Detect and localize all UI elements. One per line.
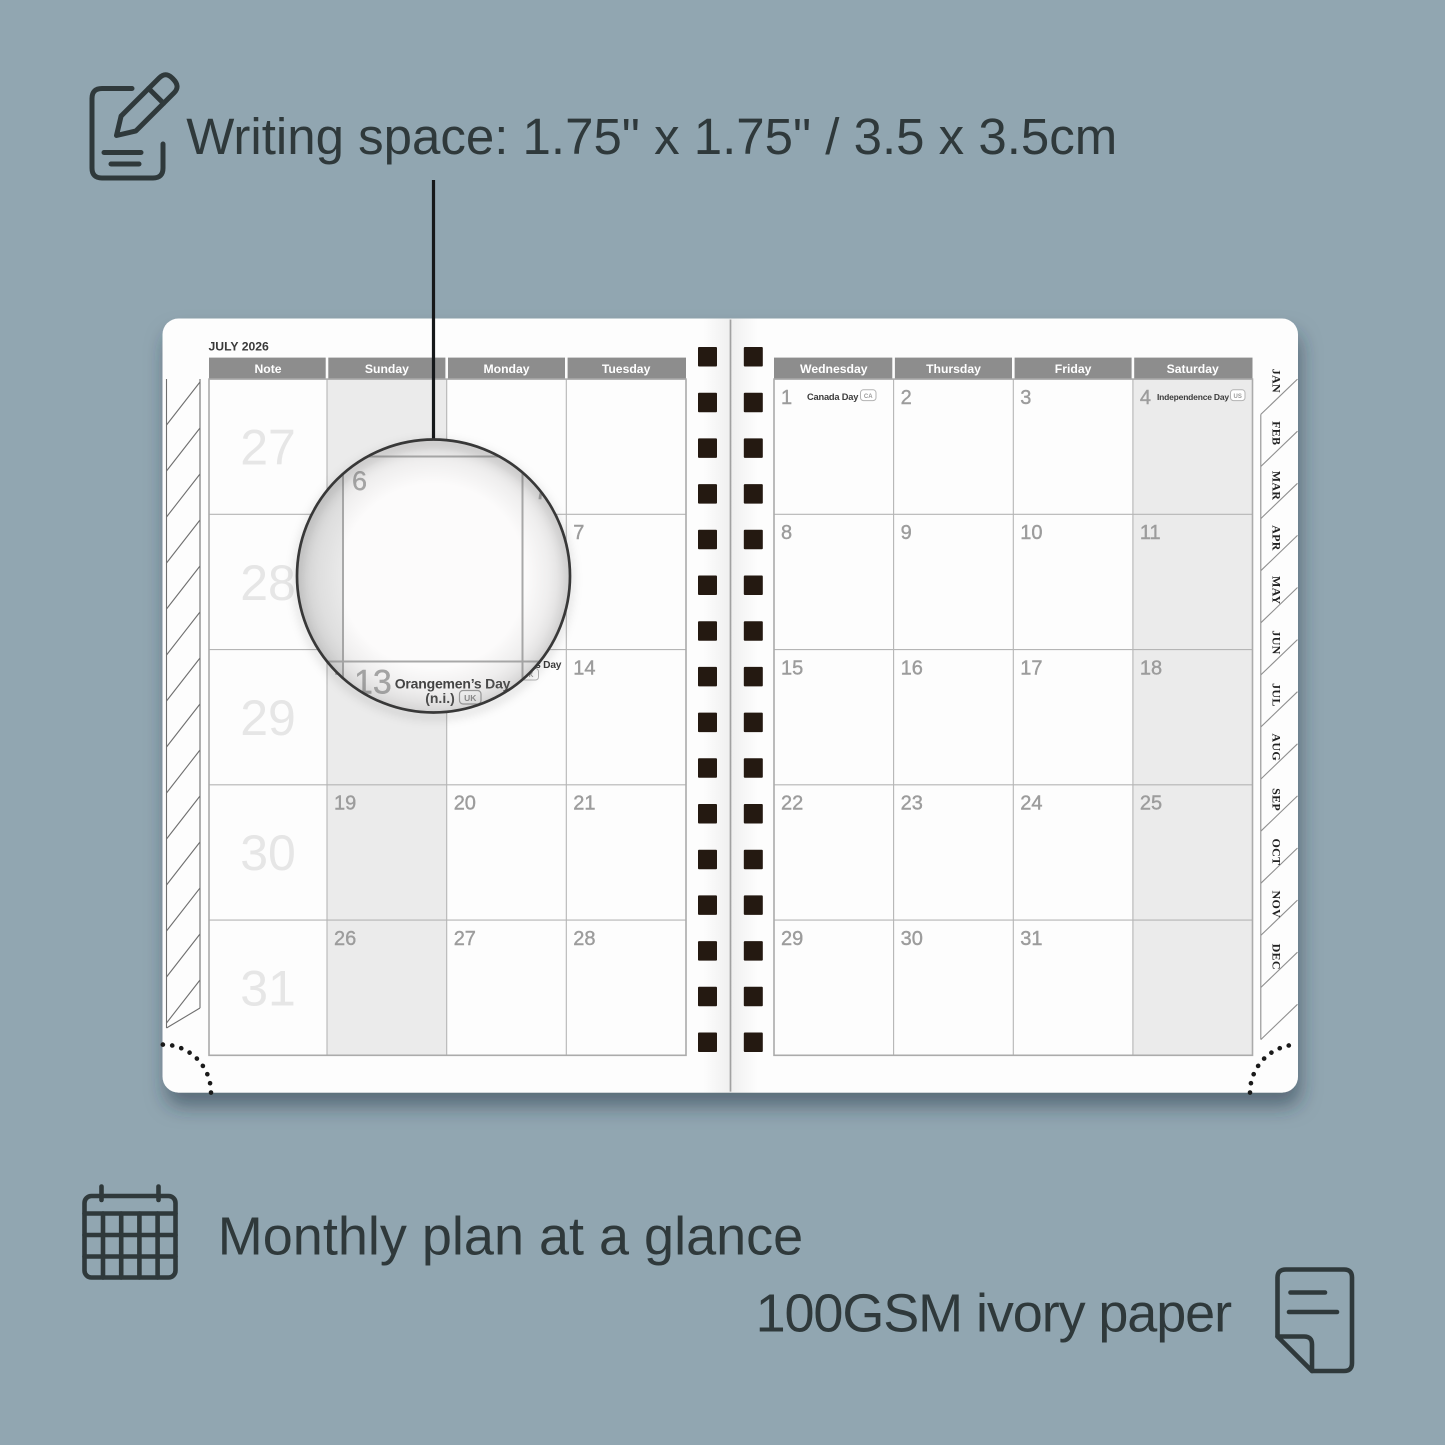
svg-text:CA: CA bbox=[864, 394, 873, 400]
svg-text:Monthly plan at a glance: Monthly plan at a glance bbox=[218, 1206, 803, 1266]
svg-text:23: 23 bbox=[901, 793, 923, 815]
svg-text:2: 2 bbox=[901, 387, 912, 409]
svg-text:14: 14 bbox=[573, 658, 595, 680]
svg-text:3: 3 bbox=[1020, 387, 1031, 409]
svg-text:Note: Note bbox=[254, 362, 281, 376]
svg-text:24: 24 bbox=[1020, 793, 1042, 815]
svg-text:MAR: MAR bbox=[1270, 471, 1284, 501]
svg-text:29: 29 bbox=[240, 690, 296, 746]
svg-text:DEC: DEC bbox=[1270, 944, 1284, 970]
svg-text:Writing space: 1.75" x 1.75" /: Writing space: 1.75" x 1.75" / 3.5 x 3.5… bbox=[186, 108, 1117, 165]
svg-text:8: 8 bbox=[781, 522, 792, 544]
svg-text:19: 19 bbox=[334, 793, 356, 815]
svg-text:US: US bbox=[1234, 394, 1242, 400]
svg-text:17: 17 bbox=[1020, 658, 1042, 680]
svg-text:Canada Day: Canada Day bbox=[807, 392, 859, 402]
svg-text:25: 25 bbox=[1140, 793, 1162, 815]
svg-text:Saturday: Saturday bbox=[1167, 362, 1219, 376]
svg-text:31: 31 bbox=[1020, 928, 1042, 950]
svg-text:MAY: MAY bbox=[1270, 576, 1284, 604]
svg-text:FEB: FEB bbox=[1270, 421, 1284, 445]
svg-text:OCT: OCT bbox=[1270, 839, 1284, 866]
svg-text:Monday: Monday bbox=[483, 362, 529, 376]
svg-text:Tuesday: Tuesday bbox=[602, 362, 651, 376]
svg-text:26: 26 bbox=[334, 928, 356, 950]
svg-text:28: 28 bbox=[573, 928, 595, 950]
svg-text:9: 9 bbox=[901, 522, 912, 544]
svg-text:29: 29 bbox=[781, 928, 803, 950]
svg-text:100GSM ivory paper: 100GSM ivory paper bbox=[756, 1284, 1233, 1344]
svg-text:Independence Day: Independence Day bbox=[1157, 392, 1229, 402]
svg-text:Thursday: Thursday bbox=[926, 362, 981, 376]
svg-text:11: 11 bbox=[1140, 522, 1161, 544]
svg-text:10: 10 bbox=[1020, 522, 1042, 544]
svg-text:Sunday: Sunday bbox=[365, 362, 409, 376]
svg-text:JUN: JUN bbox=[1270, 630, 1284, 654]
svg-text:AUG: AUG bbox=[1270, 733, 1284, 761]
svg-text:27: 27 bbox=[454, 928, 476, 950]
svg-text:4: 4 bbox=[1140, 387, 1151, 409]
svg-text:18: 18 bbox=[1140, 658, 1162, 680]
svg-text:7: 7 bbox=[573, 522, 584, 544]
svg-text:31: 31 bbox=[240, 961, 296, 1017]
svg-text:27: 27 bbox=[240, 420, 296, 476]
svg-text:30: 30 bbox=[901, 928, 923, 950]
svg-text:28: 28 bbox=[240, 555, 296, 611]
svg-text:JUL: JUL bbox=[1270, 683, 1284, 707]
svg-text:Wednesday: Wednesday bbox=[800, 362, 868, 376]
svg-text:16: 16 bbox=[901, 658, 923, 680]
svg-text:30: 30 bbox=[240, 825, 296, 881]
svg-text:APR: APR bbox=[1270, 525, 1284, 551]
svg-text:Friday: Friday bbox=[1055, 362, 1092, 376]
svg-text:SEP: SEP bbox=[1270, 788, 1284, 811]
svg-text:22: 22 bbox=[781, 793, 803, 815]
svg-text:1: 1 bbox=[781, 387, 792, 409]
svg-text:JAN: JAN bbox=[1270, 369, 1284, 393]
svg-text:20: 20 bbox=[454, 793, 476, 815]
svg-text:15: 15 bbox=[781, 658, 803, 680]
svg-text:21: 21 bbox=[573, 793, 595, 815]
svg-text:NOV: NOV bbox=[1270, 891, 1284, 919]
svg-text:JULY 2026: JULY 2026 bbox=[209, 340, 270, 354]
